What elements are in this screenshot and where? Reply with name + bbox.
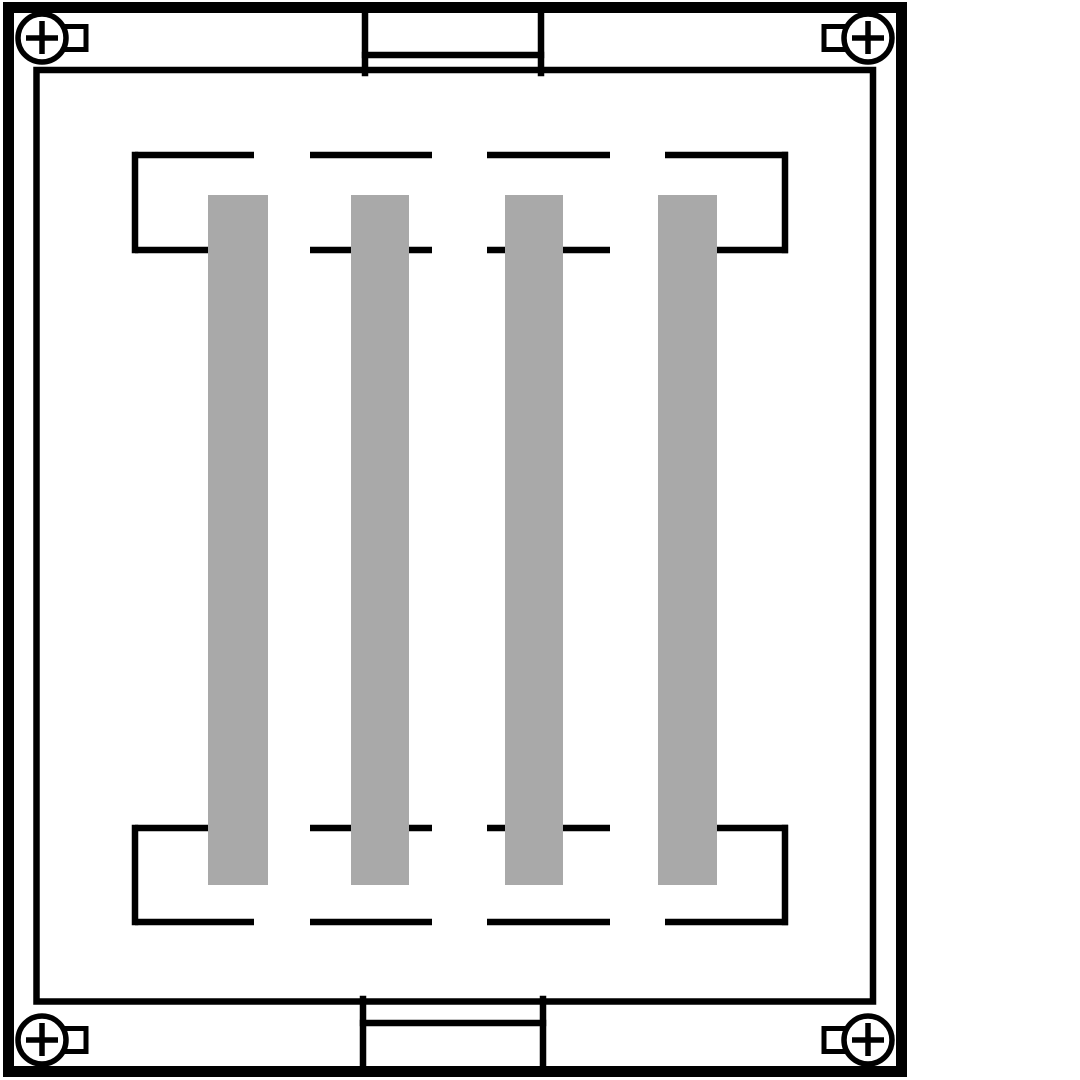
bottom-mounting-tab — [363, 999, 543, 1070]
screw-bottom-right — [824, 1016, 892, 1064]
screw-bottom-left — [18, 1016, 86, 1064]
screw-top-right — [824, 14, 892, 62]
element-bar-3 — [505, 195, 563, 885]
element-bar-4 — [658, 195, 717, 885]
element-bar-2 — [351, 195, 409, 885]
inner-frame — [37, 70, 874, 1002]
top-mounting-tab — [365, 8, 541, 73]
panel-diagram-svg — [0, 0, 1080, 1080]
element-bar-1 — [208, 195, 268, 885]
outer-frame — [9, 8, 902, 1072]
diagram-stage — [0, 0, 1080, 1080]
screw-top-left — [18, 14, 86, 62]
